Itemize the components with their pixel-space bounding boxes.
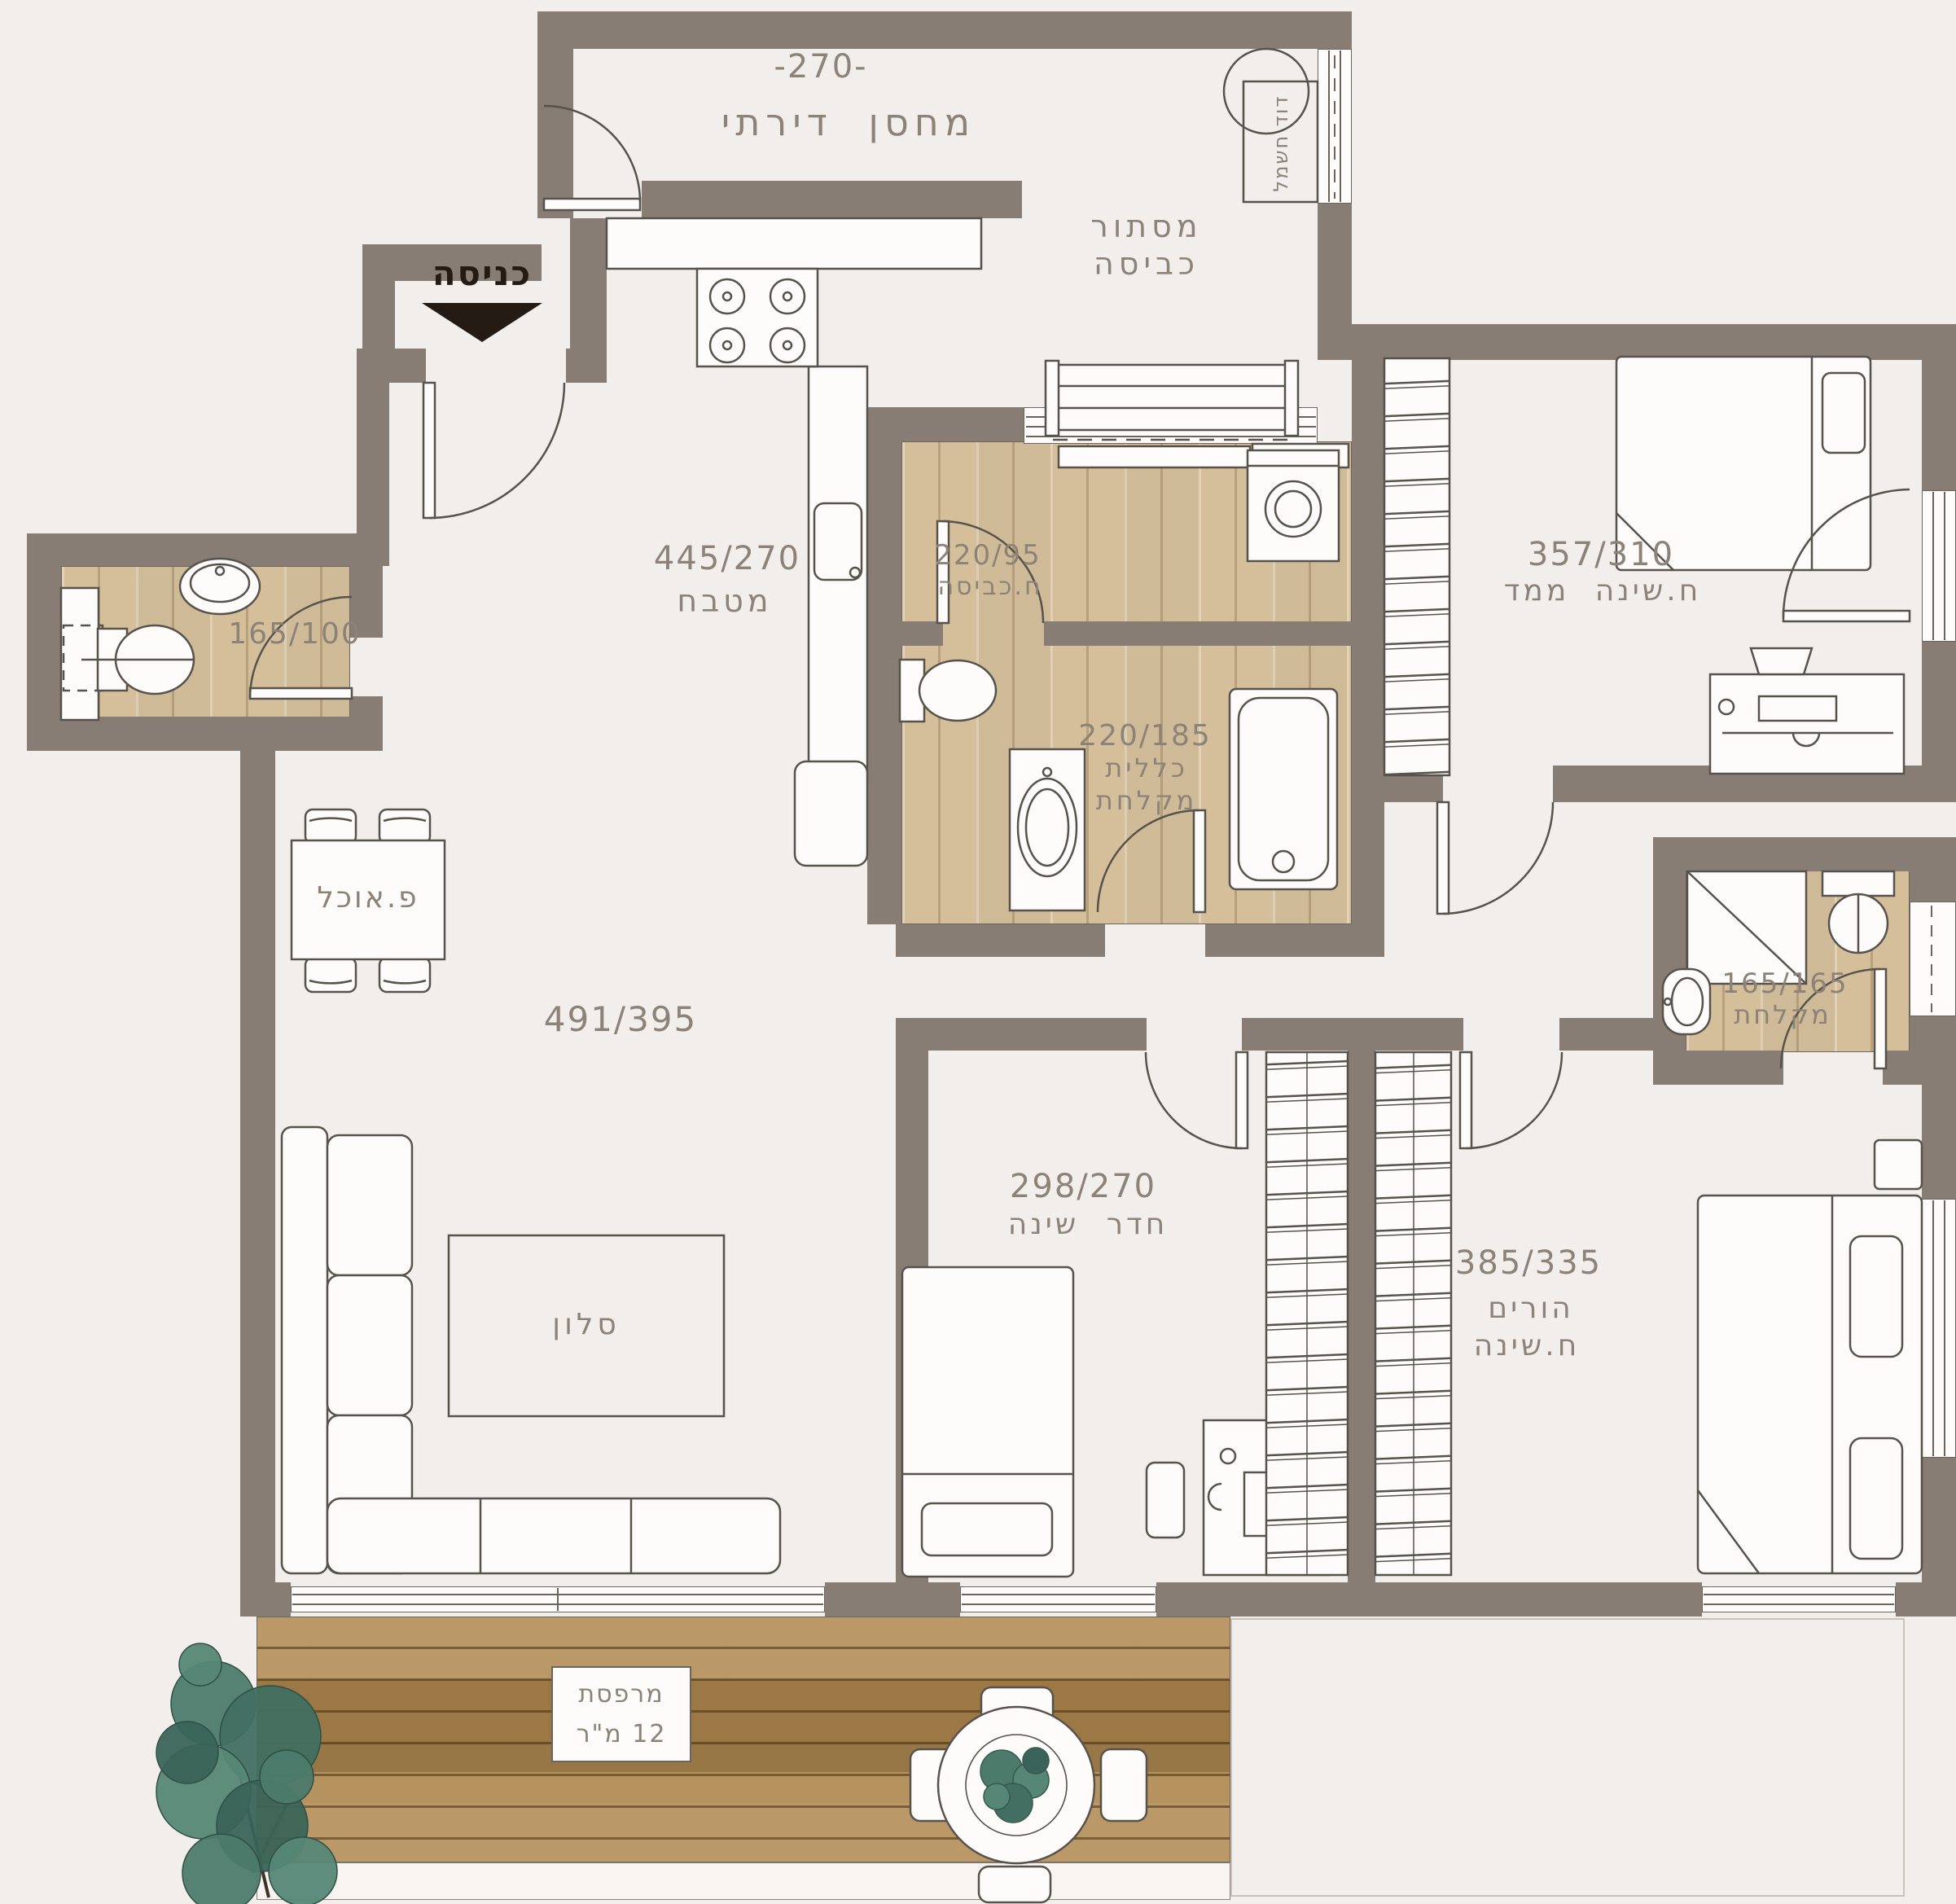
bathroom-name-label-2: מקלחת — [1096, 787, 1198, 814]
master-name-label-1: הורים — [1488, 1294, 1574, 1323]
balcony-size-label: 12 מ"ר — [577, 1720, 667, 1748]
master-name-label-2: ח.שינה — [1474, 1331, 1580, 1361]
storage-name-label: מחסן דירתי — [721, 103, 976, 141]
shower-room-dim-label: 165/165 — [1721, 970, 1848, 998]
bathroom-door — [1098, 810, 1205, 912]
shower-room-name-label: מקלחת — [1734, 1002, 1831, 1028]
bedroom-wardrobe — [1266, 1052, 1348, 1575]
shower-room-toilet — [1822, 871, 1894, 953]
balcony-label-box: מרפסת 12 מ"ר — [551, 1666, 691, 1762]
fixtures-layer — [0, 0, 1956, 1904]
laundry-concealment-label-1: מסתור — [1090, 211, 1202, 242]
bedroom-dim-label: 298/270 — [1010, 1170, 1156, 1203]
kitchen-dim-label: 445/270 — [654, 542, 800, 575]
safe-bedroom-desk — [1710, 648, 1904, 774]
kitchen-sink — [814, 503, 862, 580]
sofa — [282, 1127, 780, 1573]
guest-toilet-dim-label: 165/100 — [228, 620, 362, 649]
bedroom-bed — [902, 1267, 1073, 1577]
entry-door — [423, 383, 564, 518]
bathroom-dim-label: 220/185 — [1078, 722, 1212, 751]
floor-plan: כניסה -270- מחסן דירתי מסתור כביסה דוד ח… — [0, 0, 1956, 1904]
window-lines — [292, 50, 1945, 1611]
balcony-name-label: מרפסת — [578, 1680, 664, 1709]
bathtub — [1230, 689, 1337, 889]
laundry-concealment-label-2: כביסה — [1094, 248, 1199, 279]
boiler-label: דוד חשמל — [1271, 95, 1291, 192]
master-wardrobe — [1375, 1052, 1451, 1575]
living-name-label: סלון — [552, 1310, 620, 1340]
safe-bedroom-name-label: ח.שינה ממד — [1504, 577, 1701, 606]
master-dim-label: 385/335 — [1455, 1247, 1602, 1279]
kitchen-name-label: מטבח — [677, 586, 772, 616]
storage-door — [544, 106, 640, 210]
bathroom-name-label-1: כללית — [1105, 755, 1187, 781]
master-bed — [1698, 1140, 1922, 1573]
safe-room-door — [1437, 802, 1553, 914]
entrance-arrow-icon — [422, 303, 542, 342]
living-dim-label: 491/395 — [544, 1002, 697, 1037]
safe-bedroom-dim-label: 357/310 — [1528, 538, 1674, 571]
bedroom-door — [1146, 1052, 1248, 1148]
bathroom-vanity-sink — [1010, 749, 1085, 910]
master-door — [1460, 1052, 1562, 1148]
shower-room-sink — [1663, 969, 1710, 1034]
laundry-name-label: ח.כביסה — [937, 575, 1042, 599]
safe-bedroom-wardrobe — [1384, 358, 1449, 775]
balcony-tree — [156, 1643, 337, 1904]
washing-machine — [1248, 450, 1339, 561]
dining-label: פ.אוכל — [317, 884, 419, 913]
entrance-label: כניסה — [432, 257, 533, 291]
bathroom-toilet — [900, 660, 996, 722]
stove-cooktop — [697, 269, 818, 366]
storage-dim-label: -270- — [774, 50, 867, 83]
laundry-dim-label: 220/95 — [934, 542, 1042, 569]
bedroom-name-label: חדר שינה — [1008, 1210, 1168, 1239]
